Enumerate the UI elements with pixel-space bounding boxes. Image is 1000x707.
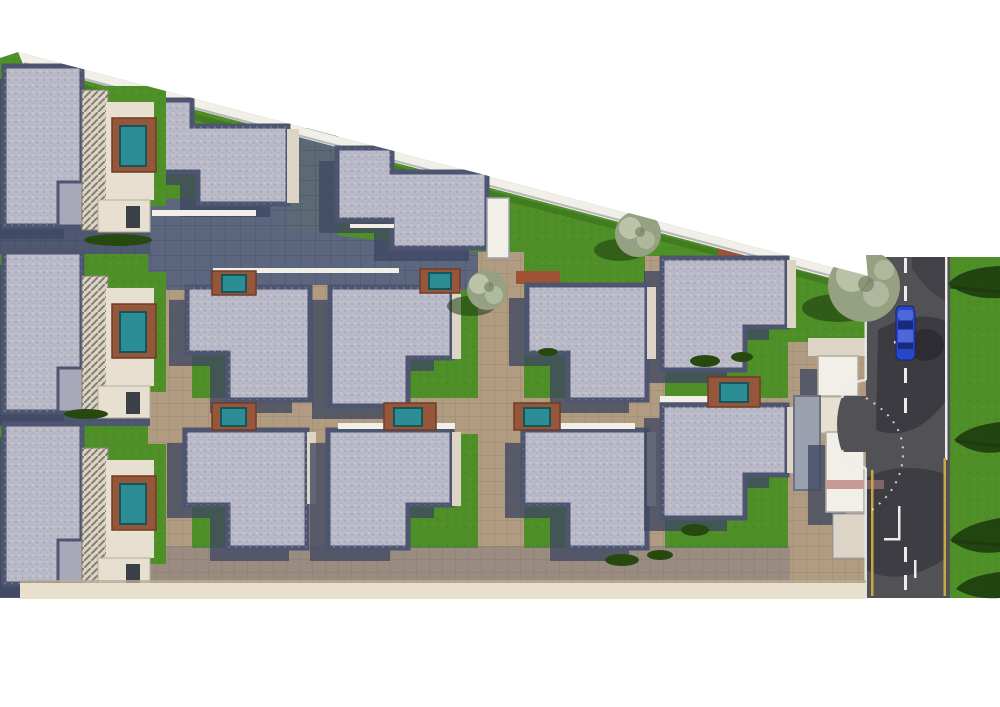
bush: [731, 352, 753, 362]
car-trunk: [898, 350, 913, 358]
unit-pool: [120, 312, 146, 352]
unit-pool: [120, 126, 146, 166]
unit-pool: [120, 484, 146, 524]
render-canvas: [0, 0, 1000, 707]
bush: [538, 348, 558, 356]
court-pool-6: [394, 408, 422, 426]
center-dash-2: [904, 286, 907, 301]
curb-left-south: [865, 468, 868, 598]
bay-mark-lower-h: [884, 538, 901, 541]
edge-line-left-yellow: [871, 470, 874, 596]
bush: [605, 554, 639, 566]
perimeter-wall-south: [20, 583, 866, 599]
west-apartment-unit-3: [0, 424, 166, 597]
gatehouse-block-4: [833, 514, 865, 558]
bush: [690, 355, 720, 367]
scene: [0, 52, 1000, 599]
edge-line-right-white: [945, 257, 948, 460]
car-roof: [898, 330, 913, 342]
unit-annex-door: [126, 206, 140, 228]
lane-dash-lower: [914, 560, 917, 578]
gatehouse-wall: [808, 338, 866, 356]
bush: [681, 524, 709, 536]
pergola-bar-1: [152, 210, 256, 216]
villa-6-side-wall: [647, 287, 656, 359]
tree-core: [635, 227, 645, 237]
hedge: [84, 234, 152, 246]
blue-car: [896, 306, 915, 360]
edge-line-right-yellow: [944, 458, 947, 596]
court-pool-5: [221, 408, 246, 426]
court-pool-4: [524, 408, 550, 426]
garden-wall-brick-1: [516, 271, 560, 284]
villa-8-side-wall: [452, 432, 461, 506]
court-pool-3: [720, 383, 748, 402]
pergola-bar-3: [350, 224, 394, 228]
tree-highlight: [874, 260, 894, 280]
car-rear-window: [898, 343, 913, 349]
villa-2-annex: [487, 198, 509, 258]
center-dash-1: [904, 258, 907, 273]
center-dash-5: [904, 547, 907, 562]
gatehouse-block-1: [818, 356, 858, 396]
unit-annex-door: [126, 392, 140, 414]
west-apartment-unit-2: [0, 252, 166, 425]
site-plan-image: [0, 0, 1000, 707]
bush: [647, 550, 673, 560]
driveway-mouth: [837, 396, 866, 452]
court-pool-1: [222, 275, 246, 292]
unit-annex: [98, 200, 150, 232]
hedge: [64, 409, 108, 419]
tree-core: [484, 282, 494, 292]
center-dash-4: [904, 398, 907, 413]
villa-3-side-wall: [787, 260, 796, 328]
car-hood: [898, 310, 913, 320]
center-dash-6: [904, 575, 907, 590]
court-pool-2: [429, 273, 451, 289]
car-windshield: [898, 321, 913, 329]
bay-mark-lower-v: [898, 506, 901, 540]
villa-1-side-wall: [287, 129, 299, 203]
center-dash-3: [904, 368, 907, 383]
west-apartment-unit-1: [0, 66, 166, 239]
tree-core: [858, 276, 874, 292]
